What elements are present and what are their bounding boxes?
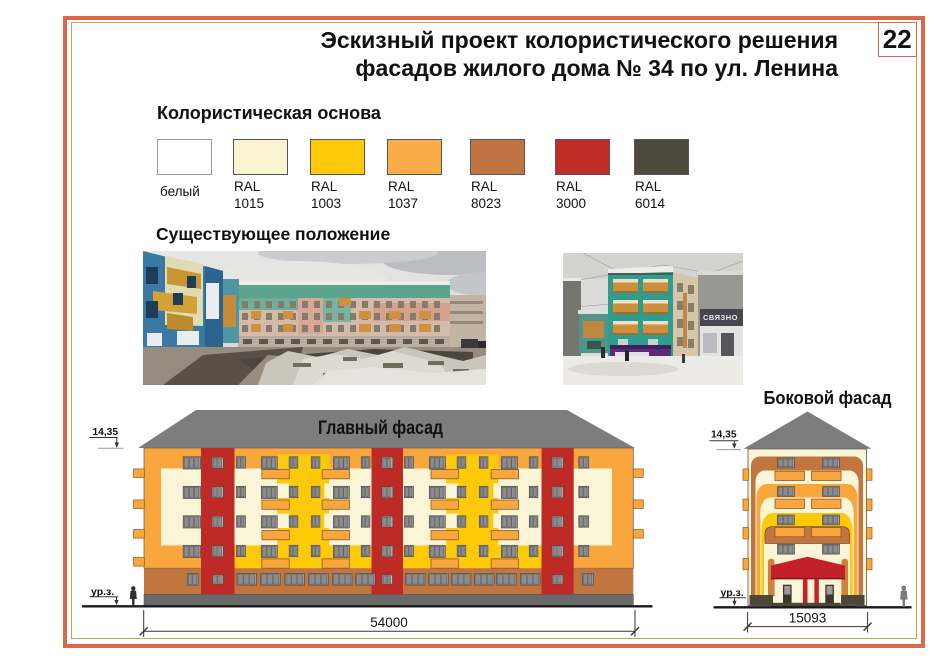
svg-text:ур.з.: ур.з. <box>721 587 744 599</box>
svg-text:15093: 15093 <box>789 610 827 625</box>
svg-text:14,35: 14,35 <box>93 427 119 438</box>
svg-text:Боковой фасад: Боковой фасад <box>764 387 892 408</box>
svg-text:54000: 54000 <box>370 615 408 630</box>
svg-text:Главный фасад: Главный фасад <box>318 418 443 439</box>
svg-text:ур.з.: ур.з. <box>91 586 114 598</box>
svg-text:14,35: 14,35 <box>711 430 737 441</box>
